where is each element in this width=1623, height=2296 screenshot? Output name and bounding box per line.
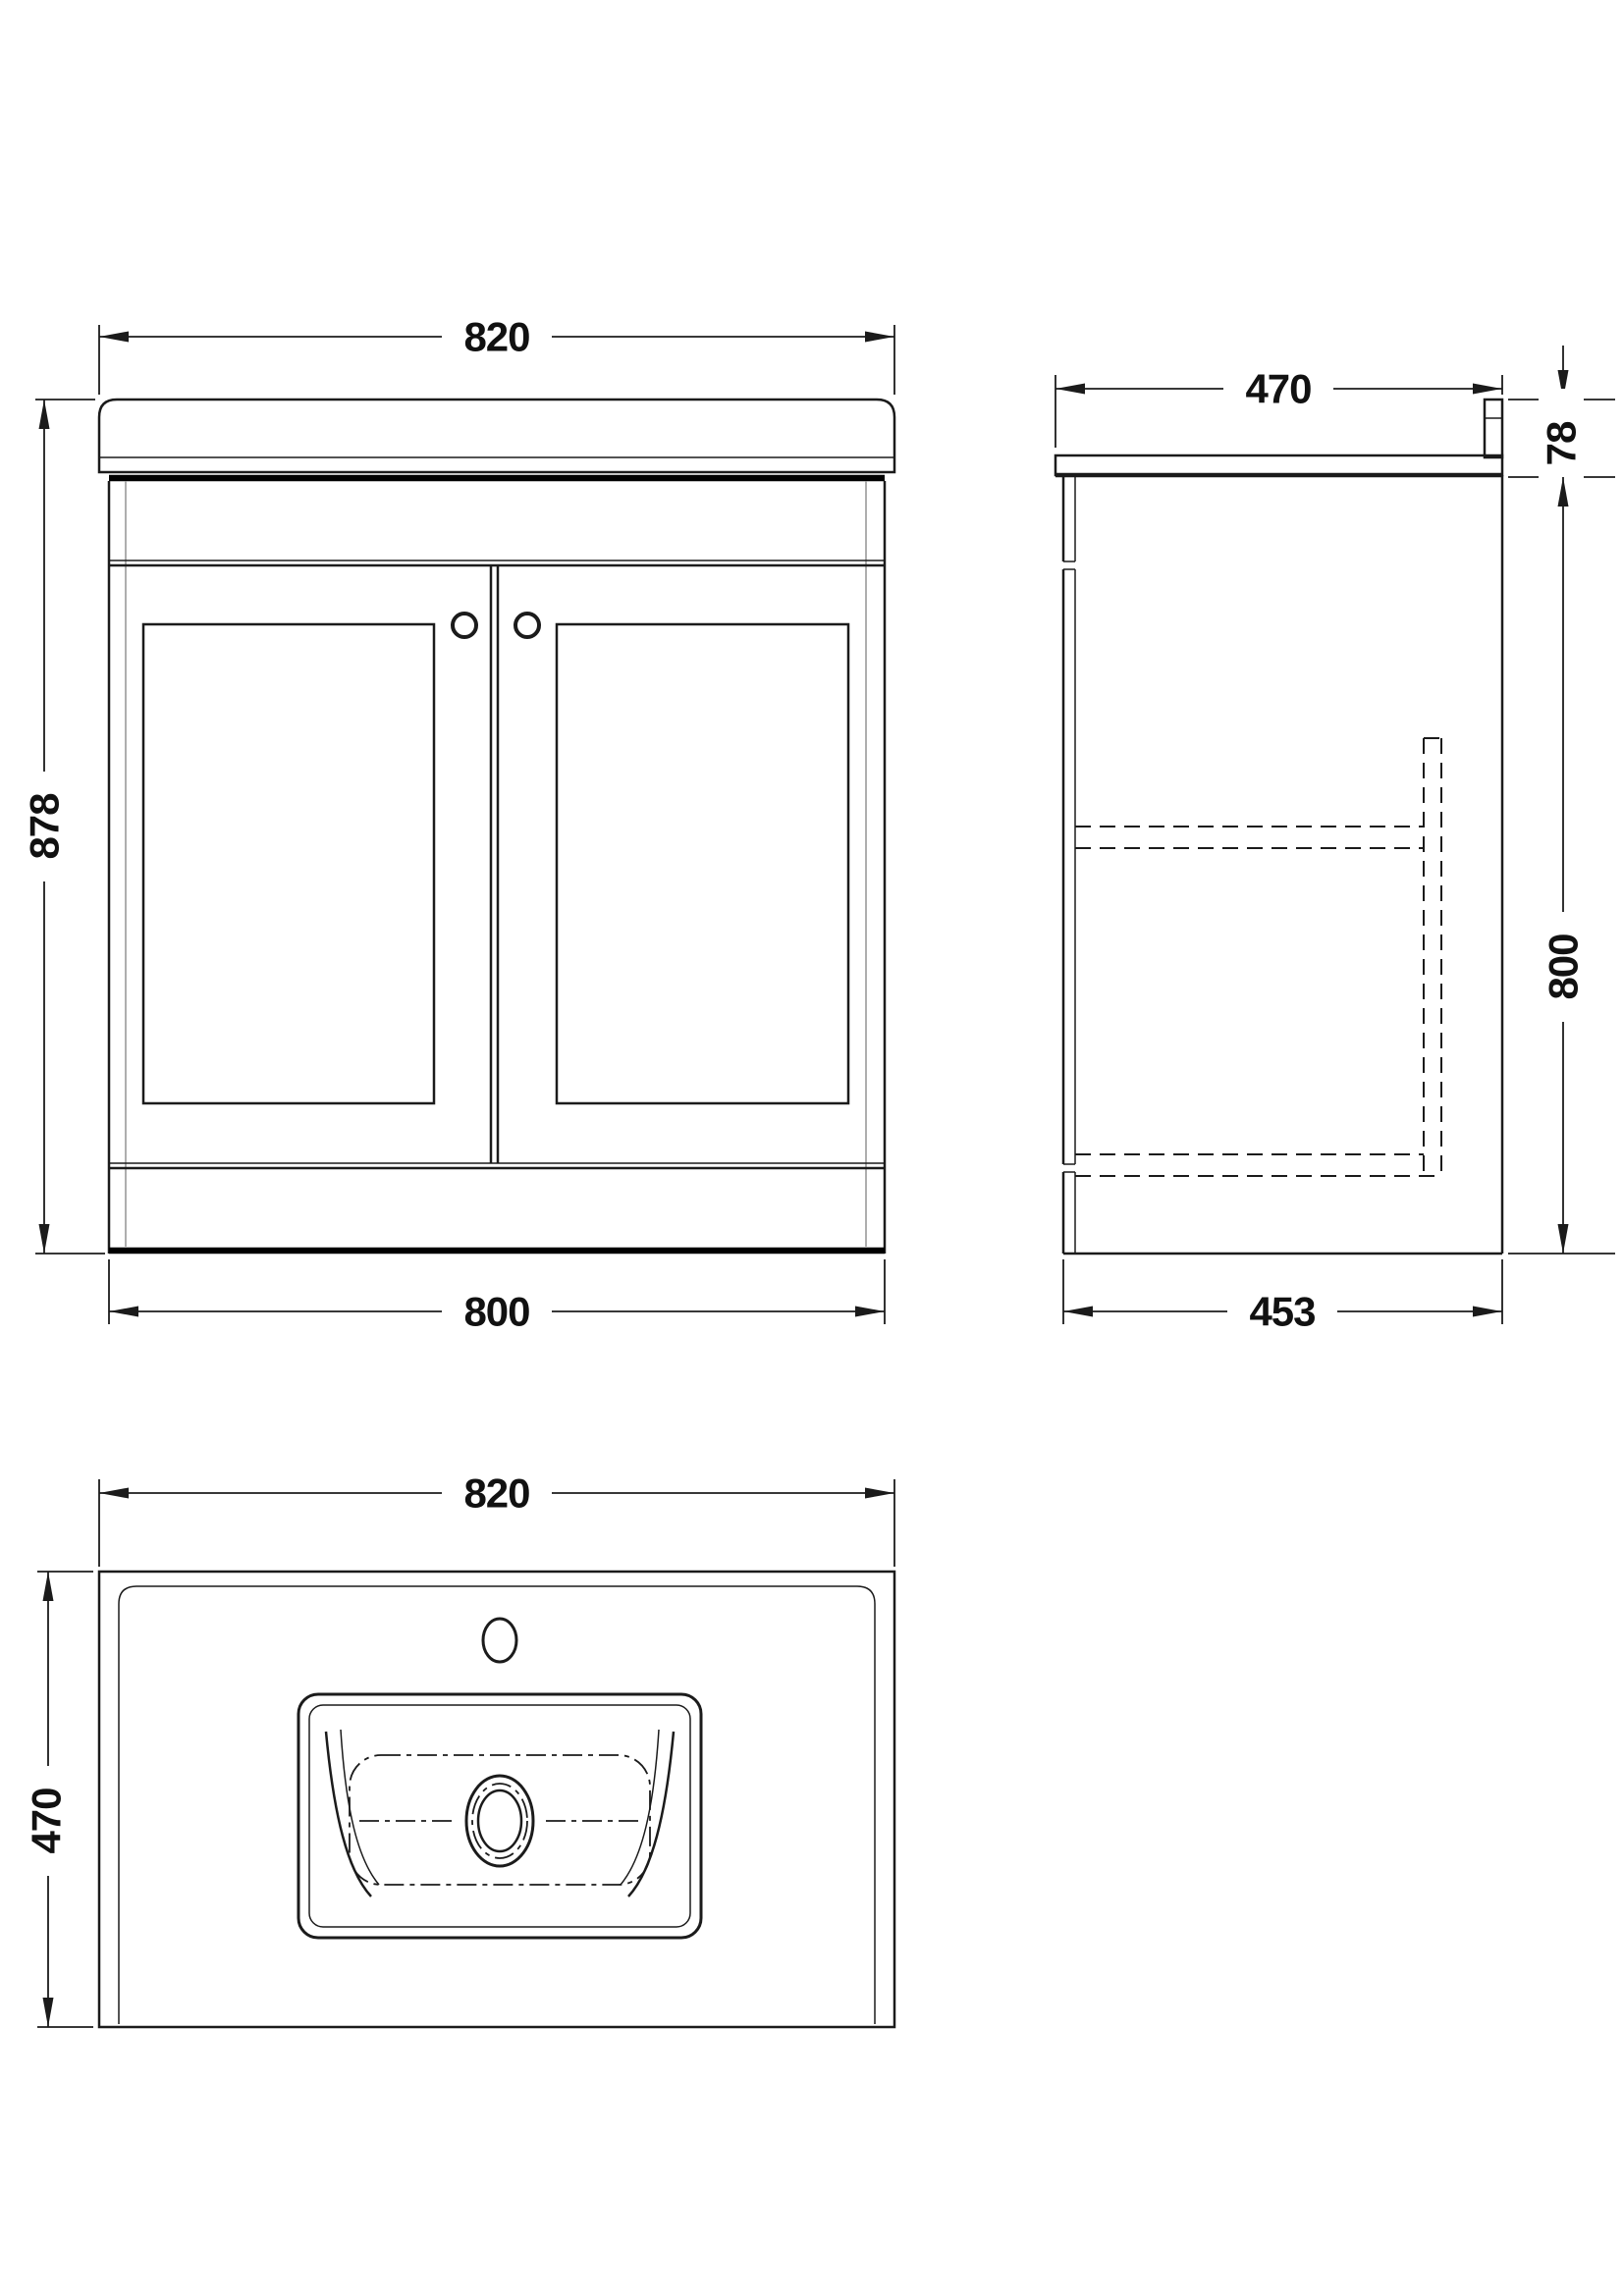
dim-side-cabinet-height: 800 xyxy=(1508,477,1615,1254)
front-doors xyxy=(143,565,848,1163)
dim-side-worktop-height: 78 xyxy=(1508,346,1615,499)
side-hidden-shelf xyxy=(1075,827,1424,848)
door-right-knob xyxy=(515,614,539,637)
tap-hole xyxy=(483,1619,516,1662)
side-depth-bottom-label: 453 xyxy=(1249,1289,1315,1335)
front-height-label: 878 xyxy=(22,793,68,860)
plan-view xyxy=(99,1572,894,2027)
side-depth-top-label: 470 xyxy=(1245,366,1311,412)
side-elevation-view xyxy=(1055,400,1502,1254)
door-left-panel xyxy=(143,624,434,1103)
drawing-sheet: 820 878 800 xyxy=(0,0,1623,2296)
door-right-panel xyxy=(557,624,848,1103)
front-worktop xyxy=(99,400,894,478)
plan-width-label: 820 xyxy=(463,1470,529,1517)
side-worktop-height-label: 78 xyxy=(1539,421,1585,465)
front-width-bottom-label: 800 xyxy=(463,1289,529,1335)
dim-plan-depth: 470 xyxy=(24,1572,94,2027)
dim-front-top-width: 820 xyxy=(99,314,894,396)
front-width-top-label: 820 xyxy=(463,314,529,360)
dim-plan-width: 820 xyxy=(99,1470,894,1568)
plan-basin xyxy=(298,1694,701,1938)
plan-depth-label: 470 xyxy=(24,1788,70,1853)
side-worktop xyxy=(1055,455,1502,475)
front-plinth xyxy=(109,1163,885,1251)
waste-hole xyxy=(466,1776,533,1866)
door-left-knob xyxy=(453,614,476,637)
side-upstand xyxy=(1485,400,1502,457)
side-hidden-back-panel xyxy=(1075,738,1441,1176)
dim-front-height: 878 xyxy=(22,400,106,1254)
dim-side-top-depth: 470 xyxy=(1055,366,1502,449)
front-elevation-view xyxy=(99,400,894,1254)
vanity-technical-drawing: 820 878 800 xyxy=(0,0,1623,2296)
dim-side-bottom-depth: 453 xyxy=(1063,1259,1502,1335)
side-cabinet xyxy=(1060,475,1502,1254)
dim-front-bottom-width: 800 xyxy=(109,1259,885,1335)
side-cabinet-height-label: 800 xyxy=(1541,934,1587,999)
